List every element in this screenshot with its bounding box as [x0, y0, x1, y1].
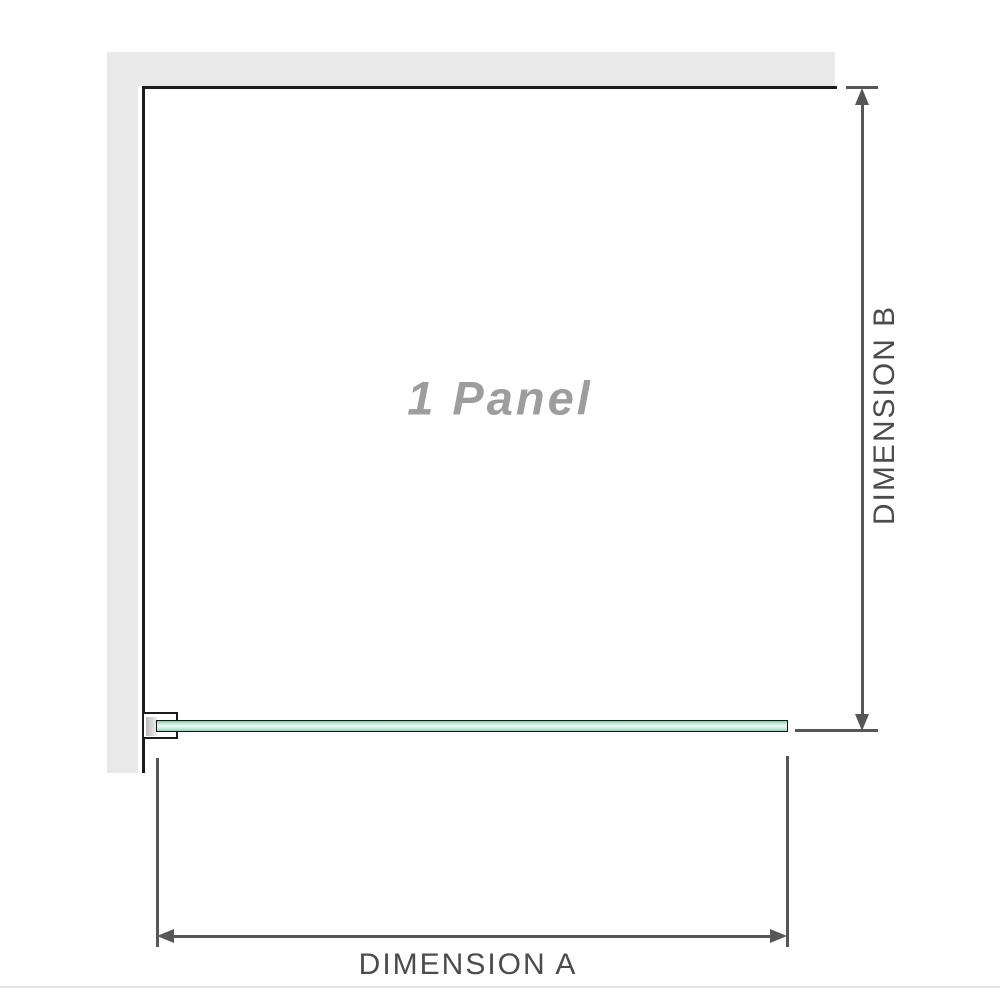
glass-panel [156, 720, 788, 732]
dimension-a-extension-left [156, 758, 159, 947]
dimension-a-label: DIMENSION A [359, 948, 578, 982]
arrow-right-icon [770, 929, 787, 943]
shower-panel-diagram: 1 Panel DIMENSION B DIMENSION A [0, 0, 1000, 1000]
wall-left [107, 52, 138, 773]
panel-outline-left [142, 86, 145, 773]
arrow-left-icon [157, 929, 174, 943]
panel-count-label: 1 Panel [407, 371, 593, 426]
arrow-up-icon [855, 88, 869, 105]
dimension-a-line [168, 935, 776, 938]
wall-top [107, 52, 835, 86]
dimension-a-extension-right [786, 756, 789, 947]
page-baseline-divider [0, 986, 1000, 988]
panel-outline-top [142, 86, 837, 89]
dimension-b-label: DIMENSION B [868, 305, 902, 525]
arrow-down-icon [855, 714, 869, 731]
dimension-b-line [861, 100, 864, 722]
